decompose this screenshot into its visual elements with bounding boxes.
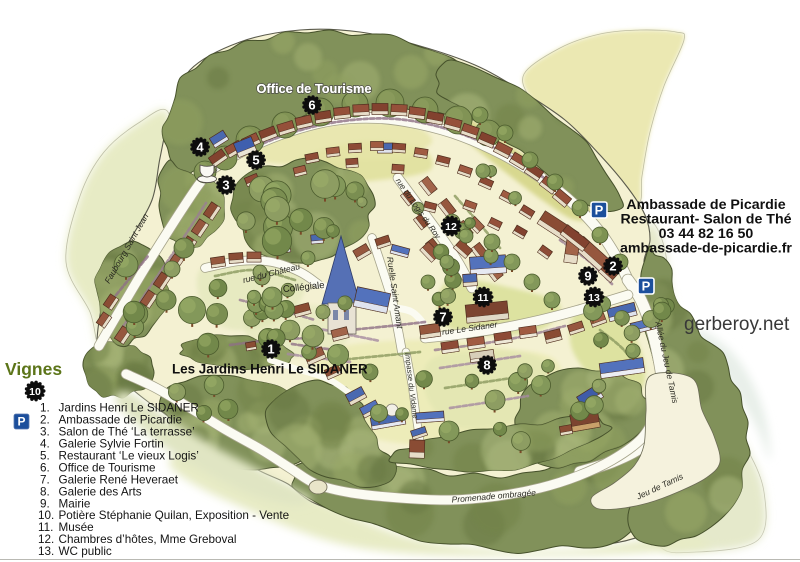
- svg-text:11: 11: [477, 292, 488, 304]
- svg-text:P: P: [595, 203, 604, 218]
- svg-text:Office de Tourisme: Office de Tourisme: [257, 81, 372, 96]
- svg-text:WC public: WC public: [59, 545, 112, 558]
- svg-text:12: 12: [445, 221, 457, 233]
- svg-text:Les Jardins Henri Le SIDANER: Les Jardins Henri Le SIDANER: [172, 362, 368, 377]
- svg-text:9: 9: [584, 269, 591, 284]
- svg-text:7: 7: [439, 310, 446, 325]
- svg-text:10: 10: [29, 386, 41, 398]
- svg-text:6: 6: [308, 98, 315, 113]
- svg-text:2: 2: [609, 259, 616, 274]
- svg-text:P: P: [17, 415, 25, 429]
- svg-text:3: 3: [222, 178, 229, 193]
- svg-text:13.: 13.: [38, 545, 54, 558]
- svg-text:5: 5: [252, 153, 259, 168]
- svg-text:1: 1: [267, 342, 274, 357]
- svg-text:4: 4: [196, 140, 204, 155]
- svg-text:8: 8: [483, 358, 490, 373]
- svg-text:gerberoy.net: gerberoy.net: [684, 314, 790, 335]
- svg-text:P: P: [642, 279, 651, 294]
- svg-text:13: 13: [588, 292, 600, 304]
- svg-text:Vignes: Vignes: [5, 359, 62, 379]
- svg-text:ambassade-de-picardie.fr: ambassade-de-picardie.fr: [620, 241, 792, 257]
